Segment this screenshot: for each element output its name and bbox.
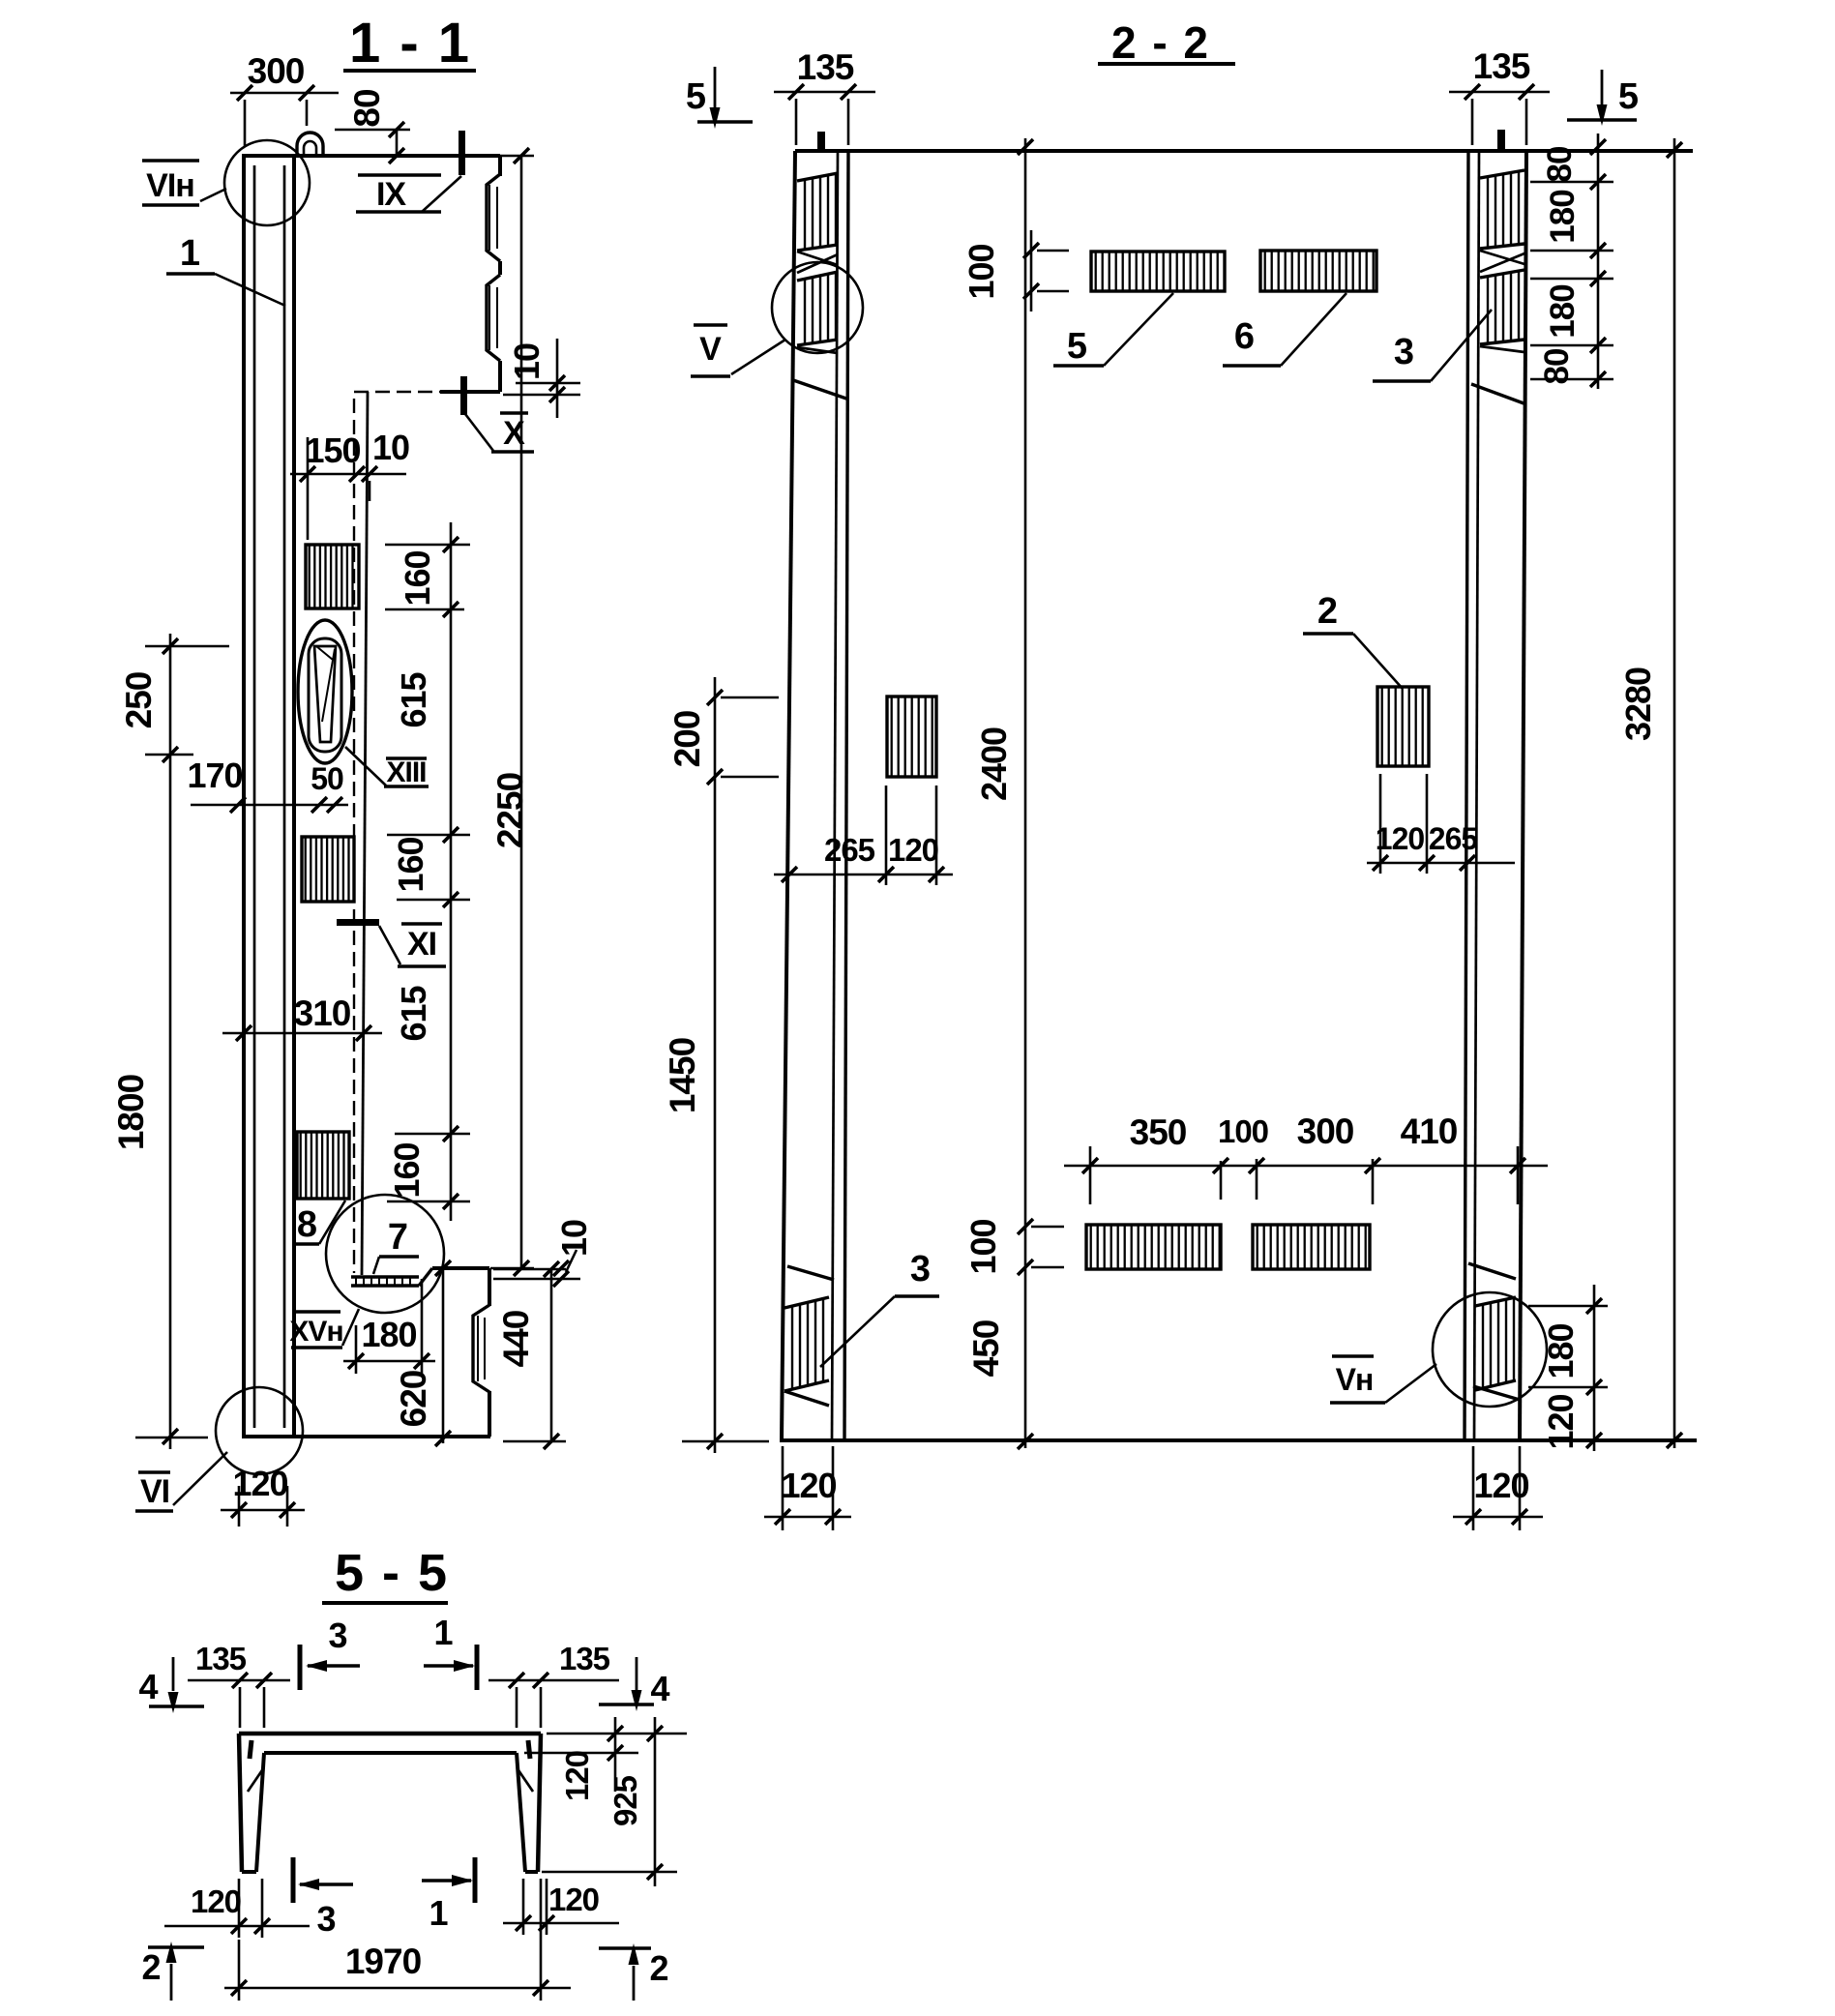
svg-text:120: 120 [888,832,938,868]
svg-text:2250: 2250 [490,772,530,848]
svg-text:10: 10 [554,1220,594,1257]
svg-text:440: 440 [496,1310,536,1367]
svg-text:170: 170 [187,756,242,795]
svg-text:VIн: VIн [146,167,194,204]
svg-text:2400: 2400 [974,727,1014,801]
svg-text:120: 120 [1541,1394,1581,1449]
svg-text:10: 10 [507,343,547,380]
svg-text:250: 250 [119,671,159,728]
svg-text:XI: XI [407,926,436,963]
svg-text:925: 925 [607,1775,643,1826]
svg-text:135: 135 [797,47,854,87]
svg-text:1: 1 [429,1893,448,1933]
svg-text:135: 135 [559,1641,610,1676]
svg-text:3: 3 [316,1899,335,1939]
svg-text:8: 8 [297,1204,316,1245]
svg-text:3: 3 [910,1249,930,1290]
svg-text:310: 310 [294,993,351,1033]
svg-text:2: 2 [649,1948,667,1988]
svg-text:80: 80 [1541,146,1579,182]
svg-text:135: 135 [1473,46,1530,86]
svg-text:265: 265 [824,832,875,868]
svg-text:1: 1 [180,233,200,274]
svg-text:410: 410 [1401,1112,1458,1151]
svg-text:2: 2 [141,1947,160,1987]
svg-text:5: 5 [686,76,706,117]
svg-text:180: 180 [1544,190,1582,244]
svg-text:120: 120 [191,1883,241,1919]
svg-text:135: 135 [195,1641,247,1676]
svg-text:6: 6 [1234,316,1254,357]
svg-text:4: 4 [650,1669,669,1708]
svg-text:120: 120 [1376,821,1425,856]
svg-text:2 - 2: 2 - 2 [1111,17,1210,68]
svg-text:200: 200 [667,710,707,767]
svg-text:450: 450 [966,1319,1006,1377]
svg-text:IX: IX [376,176,406,213]
svg-text:Vн: Vн [1336,1362,1374,1397]
svg-text:350: 350 [1130,1112,1187,1152]
svg-text:3280: 3280 [1618,667,1658,741]
svg-text:80: 80 [1538,348,1576,384]
svg-text:265: 265 [1429,821,1478,856]
svg-text:120: 120 [232,1464,287,1503]
svg-text:150: 150 [305,430,360,470]
svg-text:80: 80 [347,89,387,128]
svg-text:XVн: XVн [289,1316,342,1348]
svg-text:3: 3 [328,1616,346,1655]
svg-text:5: 5 [1067,326,1087,367]
svg-text:5: 5 [1618,76,1639,117]
svg-text:1 - 1: 1 - 1 [349,12,471,74]
svg-text:7: 7 [388,1217,407,1258]
svg-text:615: 615 [394,671,433,727]
svg-text:3: 3 [1394,332,1413,372]
svg-text:620: 620 [394,1370,433,1427]
svg-text:100: 100 [962,244,1001,299]
svg-text:V: V [699,331,722,368]
svg-text:1: 1 [433,1613,453,1652]
svg-text:160: 160 [391,837,430,892]
svg-text:100: 100 [963,1219,1003,1274]
svg-text:XIII: XIII [386,756,426,788]
svg-text:2: 2 [1317,591,1337,632]
svg-text:1970: 1970 [345,1942,422,1981]
svg-text:10: 10 [372,428,409,467]
svg-text:180: 180 [1544,284,1582,339]
svg-text:615: 615 [394,985,433,1041]
svg-text:120: 120 [548,1882,599,1917]
svg-text:120: 120 [559,1751,595,1801]
svg-text:300: 300 [1297,1112,1354,1151]
svg-text:160: 160 [387,1142,427,1198]
svg-text:1450: 1450 [663,1037,702,1113]
svg-text:100: 100 [1218,1113,1268,1149]
svg-text:300: 300 [248,51,305,91]
svg-text:1800: 1800 [111,1074,151,1150]
svg-text:5 - 5: 5 - 5 [335,1544,449,1602]
svg-text:4: 4 [138,1667,158,1706]
svg-text:50: 50 [311,761,343,796]
svg-text:160: 160 [398,550,437,606]
svg-text:180: 180 [361,1315,416,1354]
svg-text:120: 120 [781,1466,836,1505]
svg-text:180: 180 [1541,1323,1581,1379]
svg-text:VI: VI [140,1473,169,1510]
